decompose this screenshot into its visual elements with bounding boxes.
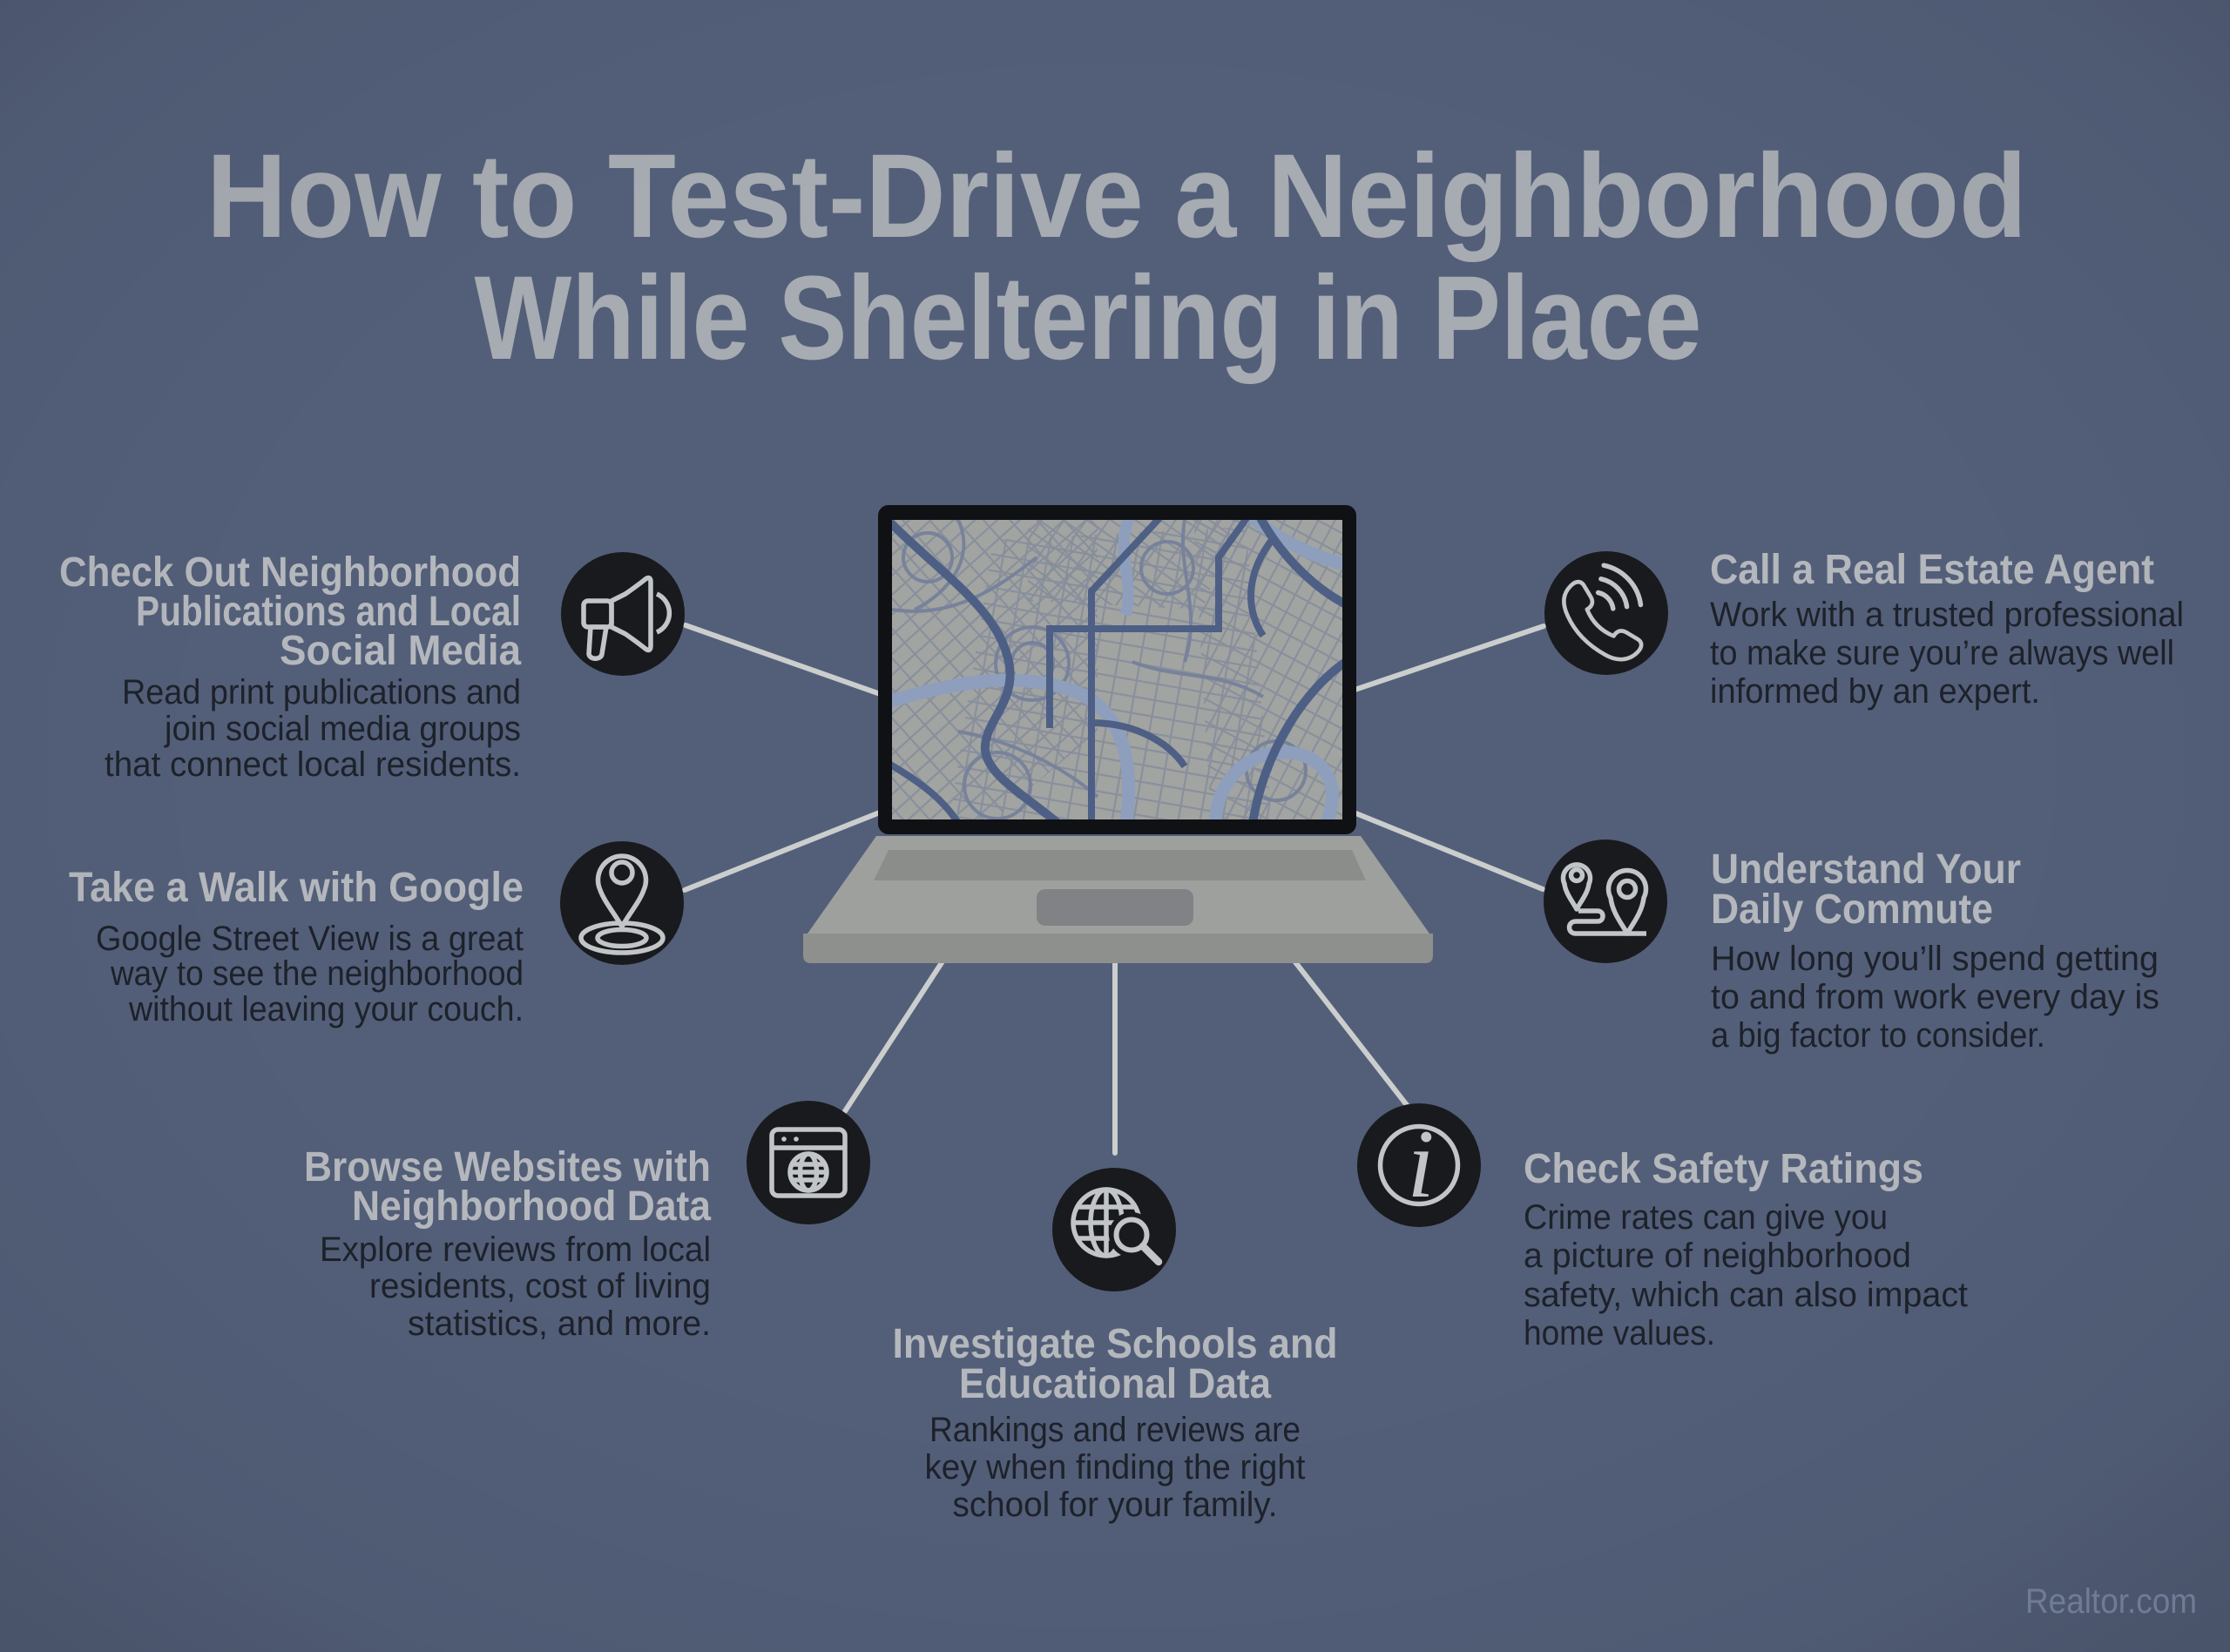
svg-text:Realtor.com: Realtor.com [2025,1582,2197,1621]
